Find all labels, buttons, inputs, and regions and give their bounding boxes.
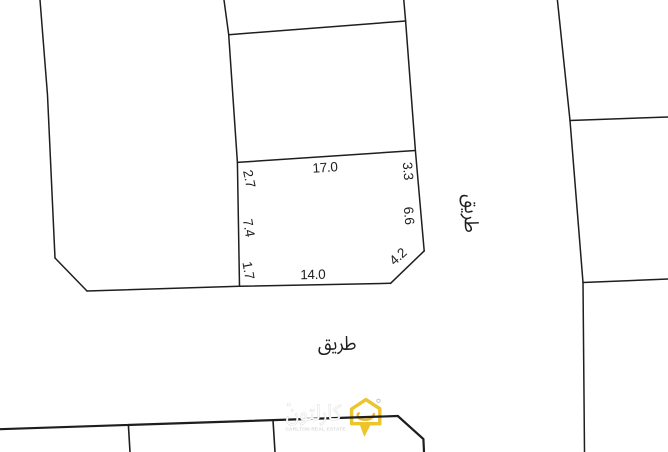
svg-text:7.4: 7.4 <box>240 218 258 239</box>
svg-text:17.0: 17.0 <box>312 159 338 176</box>
svg-text:14.0: 14.0 <box>300 267 325 282</box>
svg-text:6.6: 6.6 <box>401 206 418 225</box>
svg-text:CARLTON REAL ESTATE: CARLTON REAL ESTATE <box>286 427 347 433</box>
svg-text:1.7: 1.7 <box>239 260 257 280</box>
svg-text:3.3: 3.3 <box>400 161 417 180</box>
